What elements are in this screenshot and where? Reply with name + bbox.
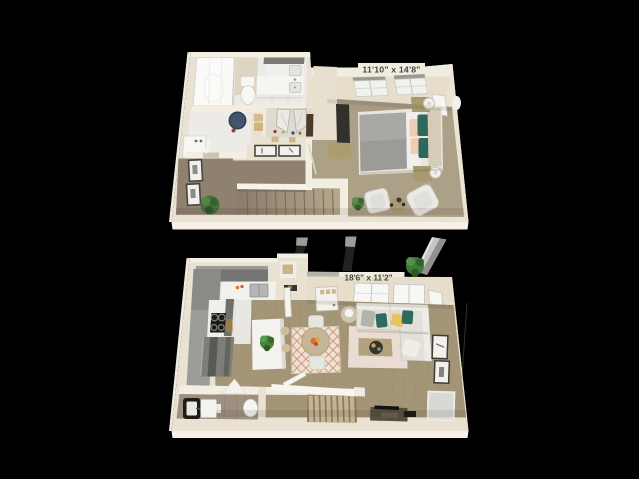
svg-text:11'10" x 14'8": 11'10" x 14'8"	[362, 64, 420, 74]
svg-text:18'6" x 11'2": 18'6" x 11'2"	[344, 273, 392, 283]
